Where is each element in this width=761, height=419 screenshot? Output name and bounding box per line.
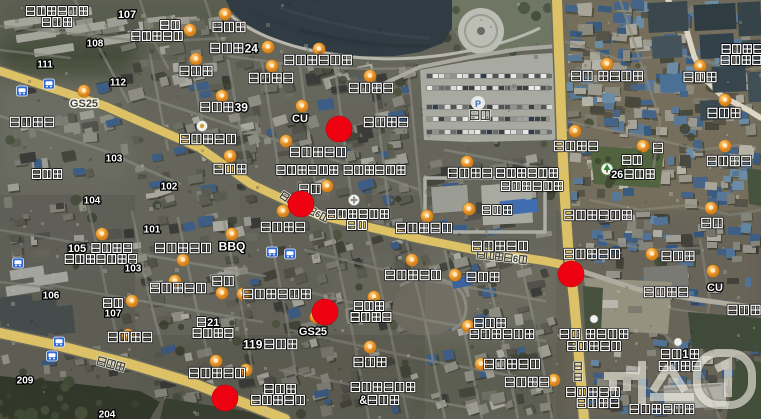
svg-text:105: 105 (68, 243, 86, 255)
svg-text:108: 108 (87, 39, 104, 50)
svg-text:39: 39 (235, 100, 249, 114)
svg-text:BBQ: BBQ (219, 239, 246, 253)
svg-text:26: 26 (611, 169, 623, 181)
svg-text:CU: CU (707, 282, 723, 294)
svg-text:119: 119 (243, 337, 263, 351)
svg-text:112: 112 (110, 78, 127, 89)
svg-text:204: 204 (99, 410, 116, 419)
svg-text:CU: CU (292, 113, 308, 125)
svg-text:104: 104 (84, 196, 101, 207)
svg-text:111: 111 (37, 60, 53, 71)
svg-text:GS25: GS25 (299, 326, 327, 338)
svg-text:106: 106 (43, 291, 60, 302)
svg-text:24: 24 (245, 41, 259, 55)
svg-text:102: 102 (161, 182, 178, 193)
svg-text:101: 101 (144, 225, 161, 236)
svg-text:107: 107 (105, 309, 122, 320)
svg-text:209: 209 (17, 376, 34, 387)
svg-text:&: & (359, 395, 367, 407)
svg-text:107: 107 (118, 9, 136, 21)
svg-text:P: P (475, 99, 481, 109)
svg-text:21: 21 (207, 317, 219, 329)
svg-text:1: 1 (682, 349, 689, 361)
svg-text:GS25: GS25 (70, 98, 98, 110)
